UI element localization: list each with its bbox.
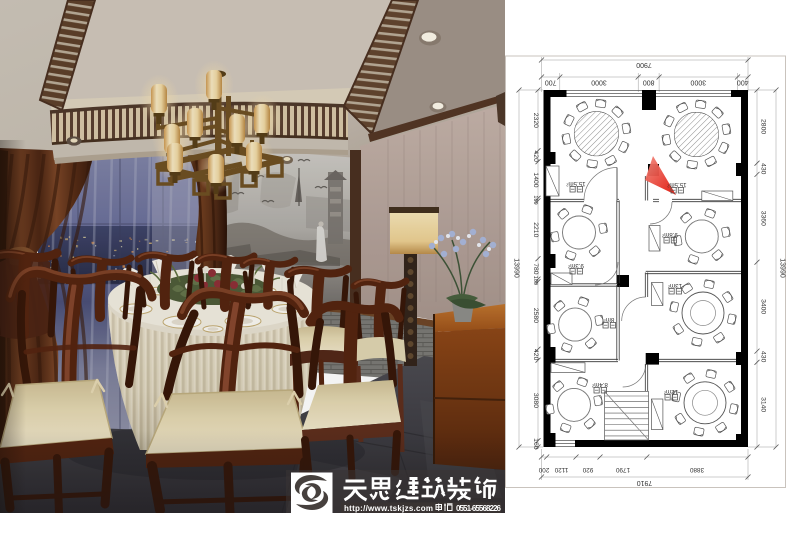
svg-text:780: 780 [532, 263, 539, 275]
svg-text:420: 420 [532, 349, 539, 361]
svg-text:http://www.tskjzs.com: http://www.tskjzs.com [344, 504, 433, 513]
svg-text:8.4m²: 8.4m² [592, 381, 608, 388]
svg-text:700: 700 [545, 79, 557, 86]
svg-text:13990: 13990 [779, 258, 786, 278]
svg-text:400: 400 [737, 79, 749, 86]
svg-text:3000: 3000 [591, 79, 607, 86]
svg-text:430: 430 [760, 163, 767, 175]
svg-text:920: 920 [582, 466, 593, 473]
svg-text:9.8m²: 9.8m² [662, 231, 678, 238]
svg-text:15.5m²: 15.5m² [566, 180, 585, 187]
svg-text:3360: 3360 [760, 211, 767, 226]
svg-text:3880: 3880 [689, 466, 704, 473]
svg-text:2320: 2320 [532, 113, 539, 128]
svg-text:3080: 3080 [532, 393, 539, 408]
svg-text:100: 100 [532, 276, 538, 285]
svg-text:800: 800 [643, 79, 655, 86]
svg-text:2210: 2210 [532, 222, 539, 237]
svg-text:3000: 3000 [690, 79, 706, 86]
svg-text:9.3m²: 9.3m² [568, 262, 584, 269]
svg-text:12m²: 12m² [664, 388, 678, 395]
svg-text:420: 420 [532, 151, 539, 163]
svg-text:13m²: 13m² [668, 282, 682, 289]
svg-text:0551-65568226: 0551-65568226 [456, 504, 502, 513]
svg-text:1400: 1400 [532, 172, 539, 187]
svg-text:15.5m²: 15.5m² [667, 181, 686, 188]
svg-text:3400: 3400 [760, 299, 767, 314]
svg-text:3140: 3140 [760, 397, 767, 412]
svg-text:8m²: 8m² [604, 316, 615, 323]
svg-text:1120: 1120 [554, 466, 568, 473]
svg-text:7900: 7900 [636, 61, 652, 68]
svg-text:2580: 2580 [532, 308, 539, 323]
svg-text:13990: 13990 [513, 258, 520, 278]
svg-text:1790: 1790 [615, 466, 630, 473]
svg-text:160: 160 [532, 438, 539, 450]
svg-text:2800: 2800 [760, 119, 767, 134]
svg-text:100: 100 [532, 195, 538, 204]
svg-text:200: 200 [538, 466, 549, 473]
svg-text:7910: 7910 [637, 479, 653, 486]
svg-text:430: 430 [760, 351, 767, 363]
